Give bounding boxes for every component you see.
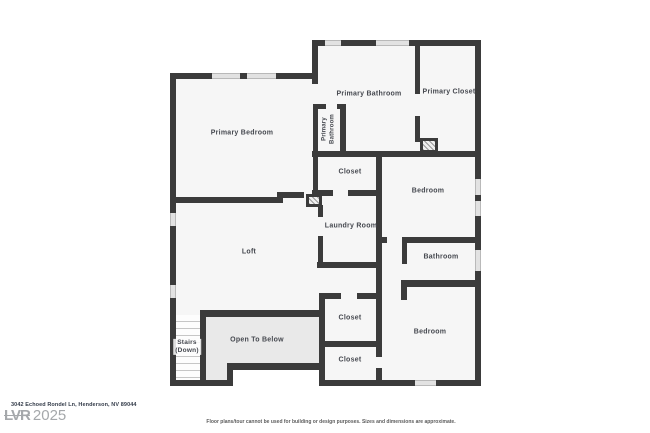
wall-segment	[200, 310, 206, 382]
window	[210, 73, 242, 79]
room-label-laundry-room: Laundry Room	[325, 223, 377, 232]
room-label-bedroom-lower: Bedroom	[414, 329, 446, 338]
open-to-below-area	[204, 315, 229, 382]
wall-segment	[313, 104, 326, 109]
wall-segment	[200, 310, 322, 317]
window	[413, 380, 438, 386]
floor-plan: Primary Bedroom Primary Bathroom Primary…	[0, 0, 650, 433]
room-label-line: Stairs	[175, 339, 199, 347]
window	[323, 40, 343, 46]
room-label-line: (Down)	[175, 347, 199, 355]
wall-segment	[319, 293, 341, 299]
room-label-primary-bathroom: Primary Bathroom	[336, 91, 401, 100]
wall-segment	[170, 197, 283, 203]
wall-segment	[376, 368, 382, 386]
wall-segment	[401, 280, 481, 287]
room-label-closet-hall: Closet	[339, 169, 362, 178]
room-label-bedroom-upper: Bedroom	[412, 188, 444, 197]
window	[245, 73, 278, 79]
room-label-primary-bedroom: Primary Bedroom	[211, 130, 274, 139]
wall-segment	[319, 341, 382, 347]
watermark-year: 2025	[33, 407, 66, 424]
wall-segment	[340, 104, 346, 157]
wall-segment	[170, 73, 318, 79]
window	[475, 248, 481, 273]
wall-segment	[277, 192, 304, 198]
room-label-bathroom: Bathroom	[423, 254, 458, 263]
wall-segment	[317, 262, 382, 268]
wall-segment	[415, 44, 420, 94]
floor-area	[319, 295, 479, 382]
disclaimer-text: Floor plans/tour cannot be used for buil…	[206, 419, 455, 425]
watermark-logo: LVR2025	[4, 407, 66, 424]
wall-segment	[227, 363, 325, 370]
hatch-chase	[420, 138, 438, 153]
room-label-closet-bottom: Closet	[339, 357, 362, 366]
window	[374, 40, 411, 46]
wall-segment	[313, 104, 318, 193]
room-label-loft: Loft	[242, 249, 256, 258]
wall-segment	[376, 293, 382, 357]
room-label-stairs: Stairs (Down)	[173, 339, 201, 355]
room-label-line: Bathroom	[329, 114, 337, 144]
wall-segment	[319, 293, 325, 386]
window	[170, 283, 176, 300]
wall-segment	[401, 280, 407, 300]
room-label-closet-top: Closet	[339, 315, 362, 324]
wall-segment	[319, 380, 481, 386]
hatch-chase	[306, 194, 322, 207]
wall-segment	[312, 151, 481, 157]
wall-segment	[312, 40, 318, 84]
wall-segment	[402, 237, 481, 243]
room-label-line: Primary	[322, 114, 330, 144]
watermark-logo-text: LVR	[4, 407, 30, 424]
room-label-open-to-below: Open To Below	[230, 337, 284, 346]
window	[170, 211, 176, 228]
room-label-primary-bathroom-wc: Primary Bathroom	[322, 114, 337, 144]
window	[475, 177, 481, 197]
wall-segment	[402, 243, 407, 264]
room-label-primary-closet: Primary Closet	[423, 89, 476, 98]
wall-segment	[376, 237, 387, 243]
window	[475, 199, 481, 218]
